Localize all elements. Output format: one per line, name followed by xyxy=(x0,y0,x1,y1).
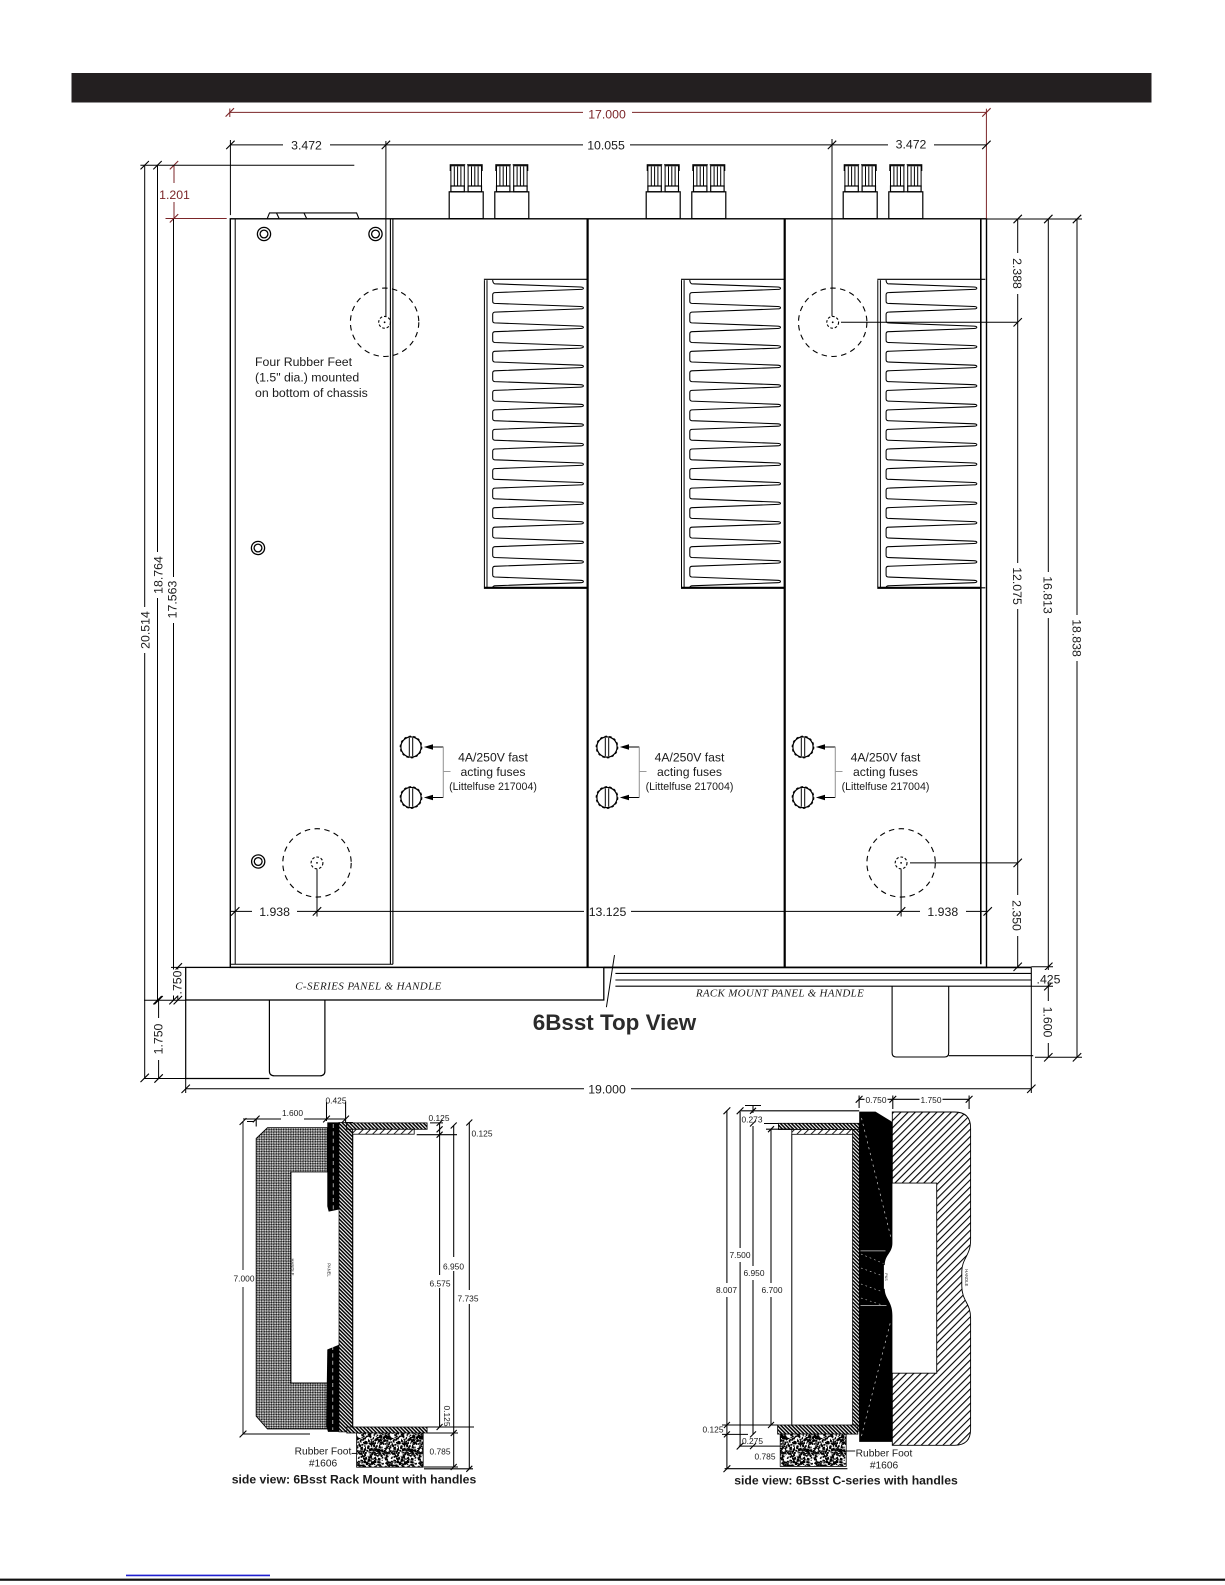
svg-text:1.750: 1.750 xyxy=(921,1095,942,1105)
svg-text:20.514: 20.514 xyxy=(139,611,153,649)
svg-text:0.785: 0.785 xyxy=(755,1452,776,1462)
svg-text:(Littelfuse 217004): (Littelfuse 217004) xyxy=(449,781,537,793)
svg-text:acting fuses: acting fuses xyxy=(657,765,722,779)
svg-text:PANEL: PANEL xyxy=(327,1263,332,1277)
svg-text:12.075: 12.075 xyxy=(1010,567,1024,605)
svg-text:0.125: 0.125 xyxy=(429,1113,450,1123)
svg-text:acting fuses: acting fuses xyxy=(853,765,918,779)
svg-text:Rubber Foot: Rubber Foot xyxy=(295,1447,352,1458)
svg-text:1.600: 1.600 xyxy=(1040,1007,1054,1038)
svg-text:7.000: 7.000 xyxy=(234,1274,255,1284)
svg-text:6.575: 6.575 xyxy=(430,1279,451,1289)
svg-text:Four Rubber Feet: Four Rubber Feet xyxy=(255,355,353,369)
svg-text:1.600: 1.600 xyxy=(282,1108,303,1118)
svg-text:(1.5" dia.) mounted: (1.5" dia.) mounted xyxy=(255,371,359,385)
svg-text:3.472: 3.472 xyxy=(291,139,322,153)
svg-text:17.563: 17.563 xyxy=(166,581,180,619)
svg-text:side view: 6Bsst Rack Mount wi: side view: 6Bsst Rack Mount with handles xyxy=(232,1473,477,1487)
svg-text:HANDLE: HANDLE xyxy=(290,1259,295,1276)
svg-text:0.275: 0.275 xyxy=(742,1436,763,1446)
svg-text:0.125: 0.125 xyxy=(442,1406,452,1427)
svg-text:(Littelfuse 217004): (Littelfuse 217004) xyxy=(842,781,930,793)
svg-text:0.125: 0.125 xyxy=(472,1129,493,1139)
svg-text:4A/250V fast: 4A/250V fast xyxy=(458,751,528,765)
svg-text:#1606: #1606 xyxy=(870,1461,899,1472)
svg-text:7.735: 7.735 xyxy=(458,1294,479,1304)
svg-text:1.938: 1.938 xyxy=(259,905,290,919)
svg-text:18.764: 18.764 xyxy=(152,556,166,594)
svg-text:0.425: 0.425 xyxy=(326,1096,347,1106)
svg-text:C-SERIES PANEL & HANDLE: C-SERIES PANEL & HANDLE xyxy=(295,981,442,993)
svg-text:0.785: 0.785 xyxy=(430,1447,451,1457)
svg-text:0.125: 0.125 xyxy=(703,1425,724,1435)
svg-text:0.750: 0.750 xyxy=(866,1095,887,1105)
svg-text:17.000: 17.000 xyxy=(588,108,626,122)
svg-text:on bottom of chassis: on bottom of chassis xyxy=(255,386,368,400)
svg-text:2.350: 2.350 xyxy=(1010,900,1024,931)
svg-text:1.938: 1.938 xyxy=(927,905,958,919)
svg-text:19.000: 19.000 xyxy=(588,1082,626,1096)
svg-text:1.750: 1.750 xyxy=(152,1023,166,1054)
svg-text:RACK MOUNT PANEL & HANDLE: RACK MOUNT PANEL & HANDLE xyxy=(695,988,864,1000)
svg-text:2.388: 2.388 xyxy=(1010,258,1024,289)
svg-text:7.500: 7.500 xyxy=(730,1250,751,1260)
svg-text:Rubber Foot: Rubber Foot xyxy=(856,1449,913,1460)
svg-text:6.700: 6.700 xyxy=(762,1285,783,1295)
svg-text:4A/250V fast: 4A/250V fast xyxy=(655,751,725,765)
svg-text:6Bsst Top View: 6Bsst Top View xyxy=(533,1010,697,1035)
svg-text:acting fuses: acting fuses xyxy=(460,765,525,779)
svg-text:.425: .425 xyxy=(1037,973,1061,987)
svg-text:#1606: #1606 xyxy=(309,1459,338,1470)
svg-text:6.950: 6.950 xyxy=(744,1268,765,1278)
svg-text:4A/250V fast: 4A/250V fast xyxy=(851,751,921,765)
svg-text:6.950: 6.950 xyxy=(443,1262,464,1272)
svg-text:10.055: 10.055 xyxy=(587,138,625,152)
svg-text:0.273: 0.273 xyxy=(742,1115,763,1125)
svg-text:8.007: 8.007 xyxy=(716,1285,737,1295)
svg-text:18.838: 18.838 xyxy=(1070,619,1084,657)
svg-text:3.472: 3.472 xyxy=(896,138,927,152)
svg-text:(Littelfuse 217004): (Littelfuse 217004) xyxy=(646,781,734,793)
svg-text:side view: 6Bsst C-series with: side view: 6Bsst C-series with handles xyxy=(734,1474,958,1488)
svg-text:16.813: 16.813 xyxy=(1041,576,1055,614)
svg-text:.750: .750 xyxy=(171,970,185,994)
svg-text:HANDLE: HANDLE xyxy=(964,1269,969,1286)
svg-text:13.125: 13.125 xyxy=(589,905,627,919)
svg-text:1.201: 1.201 xyxy=(159,188,190,202)
svg-text:P&S: P&S xyxy=(884,1273,888,1281)
